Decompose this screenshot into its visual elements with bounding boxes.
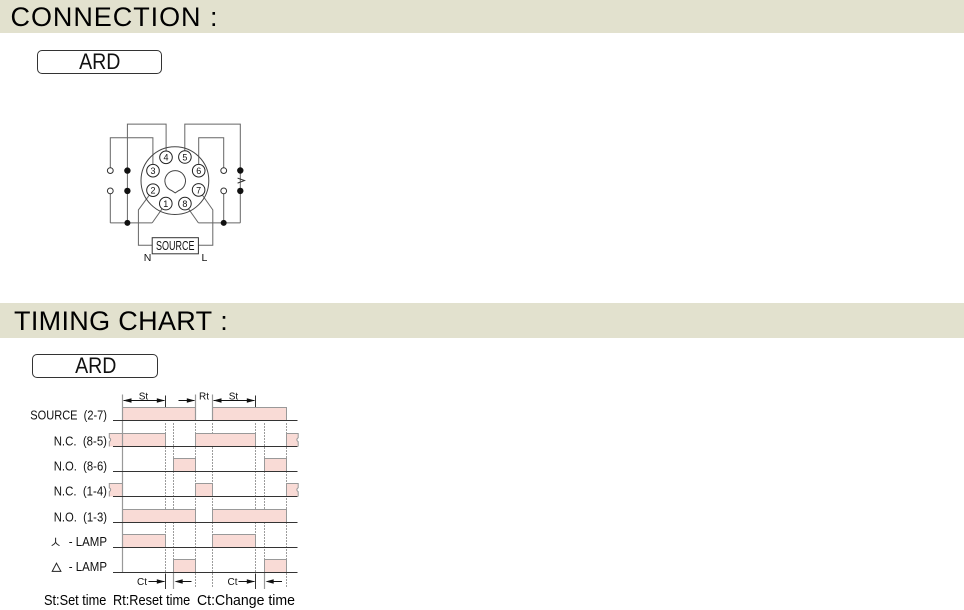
svg-text:7: 7 bbox=[196, 185, 201, 195]
svg-text:8: 8 bbox=[182, 199, 187, 209]
svg-text:L: L bbox=[201, 252, 207, 264]
svg-text:N: N bbox=[144, 252, 152, 264]
svg-text:N.O. (1-3): N.O. (1-3) bbox=[54, 511, 107, 525]
svg-text:- LAMP: - LAMP bbox=[69, 535, 107, 549]
svg-text:4: 4 bbox=[163, 153, 168, 163]
svg-text:5: 5 bbox=[182, 152, 187, 162]
svg-text:SOURCE (2-7): SOURCE (2-7) bbox=[30, 409, 107, 423]
svg-text:Rt: Rt bbox=[199, 392, 209, 403]
svg-text:6: 6 bbox=[196, 166, 201, 176]
svg-text:3: 3 bbox=[150, 166, 155, 176]
svg-text:St: St bbox=[229, 392, 239, 403]
svg-text:Ct: Ct bbox=[137, 577, 147, 588]
svg-text:- LAMP: - LAMP bbox=[69, 560, 107, 574]
svg-text:1: 1 bbox=[163, 199, 168, 209]
svg-text:SOURCE: SOURCE bbox=[156, 239, 195, 253]
svg-text:St: St bbox=[139, 392, 149, 403]
svg-text:N.C. (1-4): N.C. (1-4) bbox=[54, 485, 107, 499]
svg-text:Ct: Ct bbox=[228, 577, 238, 588]
svg-text:N.O. (8-6): N.O. (8-6) bbox=[54, 460, 107, 474]
svg-text:2: 2 bbox=[150, 186, 155, 196]
svg-text:N.C. (8-5): N.C. (8-5) bbox=[54, 435, 107, 449]
